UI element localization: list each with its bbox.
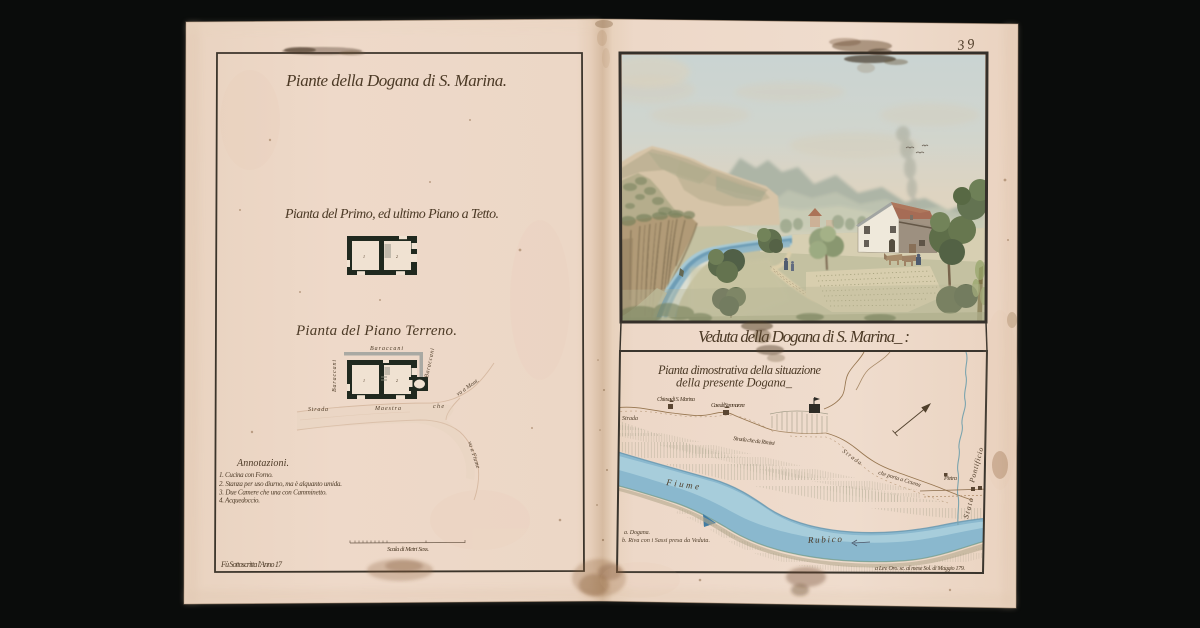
svg-text:Annotazioni.: Annotazioni.	[236, 458, 289, 469]
svg-text:Pianta del Piano Terreno.: Pianta del Piano Terreno.	[295, 323, 457, 339]
svg-text:Piante della Dogana di S. Mari: Piante della Dogana di S. Marina.	[285, 71, 507, 90]
svg-text:1. Cucina con Forno.: 1. Cucina con Forno.	[219, 471, 273, 479]
svg-text:Baraccani: Baraccani	[332, 360, 338, 392]
svg-text:Rubico: Rubico	[807, 534, 843, 545]
svg-text:che: che	[433, 404, 444, 410]
svg-text:4. Acquedoccio.: 4. Acquedoccio.	[219, 497, 260, 505]
svg-text:1: 1	[363, 254, 365, 259]
svg-text:Baraccani: Baraccani	[370, 346, 403, 352]
svg-text:2: 2	[396, 254, 398, 259]
svg-text:2: 2	[396, 378, 398, 383]
svg-text:Pietra: Pietra	[943, 476, 957, 482]
svg-text:3. Due Camere che una con Camm: 3. Due Camere che una con Camminetto.	[218, 489, 327, 497]
svg-text:Pianta del Primo, ed ultimo Pi: Pianta del Primo, ed ultimo Piano a Tett…	[284, 207, 499, 222]
svg-text:Scala di Metri Sess.: Scala di Metri Sess.	[387, 546, 429, 553]
svg-text:Case del Sommarone: Case del Sommarone	[711, 403, 745, 409]
svg-text:a Lev. Oro. sc. al mese Sol. d: a Lev. Oro. sc. al mese Sol. di Maggio 1…	[875, 566, 965, 572]
svg-text:Fù Sottoscritta l'Anno 17: Fù Sottoscritta l'Anno 17	[220, 560, 283, 569]
svg-text:Strada: Strada	[308, 407, 328, 413]
svg-text:della presente Dogana_: della presente Dogana_	[676, 376, 793, 390]
svg-text:2. Stanza per uso diurno, ma è: 2. Stanza per uso diurno, ma è alquanto …	[219, 480, 342, 488]
svg-text:Maestra: Maestra	[374, 406, 401, 412]
svg-text:Strada: Strada	[622, 416, 638, 422]
svg-text:Chiesa di S. Marina: Chiesa di S. Marina	[657, 397, 695, 403]
svg-text:Veduta della Dogana di S. Mari: Veduta della Dogana di S. Marina_ :	[698, 327, 910, 346]
svg-text:a. Dogana.: a. Dogana.	[624, 530, 650, 536]
svg-text:b. Riva con i Sassi presa da V: b. Riva con i Sassi presa da Veduta.	[622, 538, 710, 544]
svg-text:1: 1	[363, 378, 365, 383]
